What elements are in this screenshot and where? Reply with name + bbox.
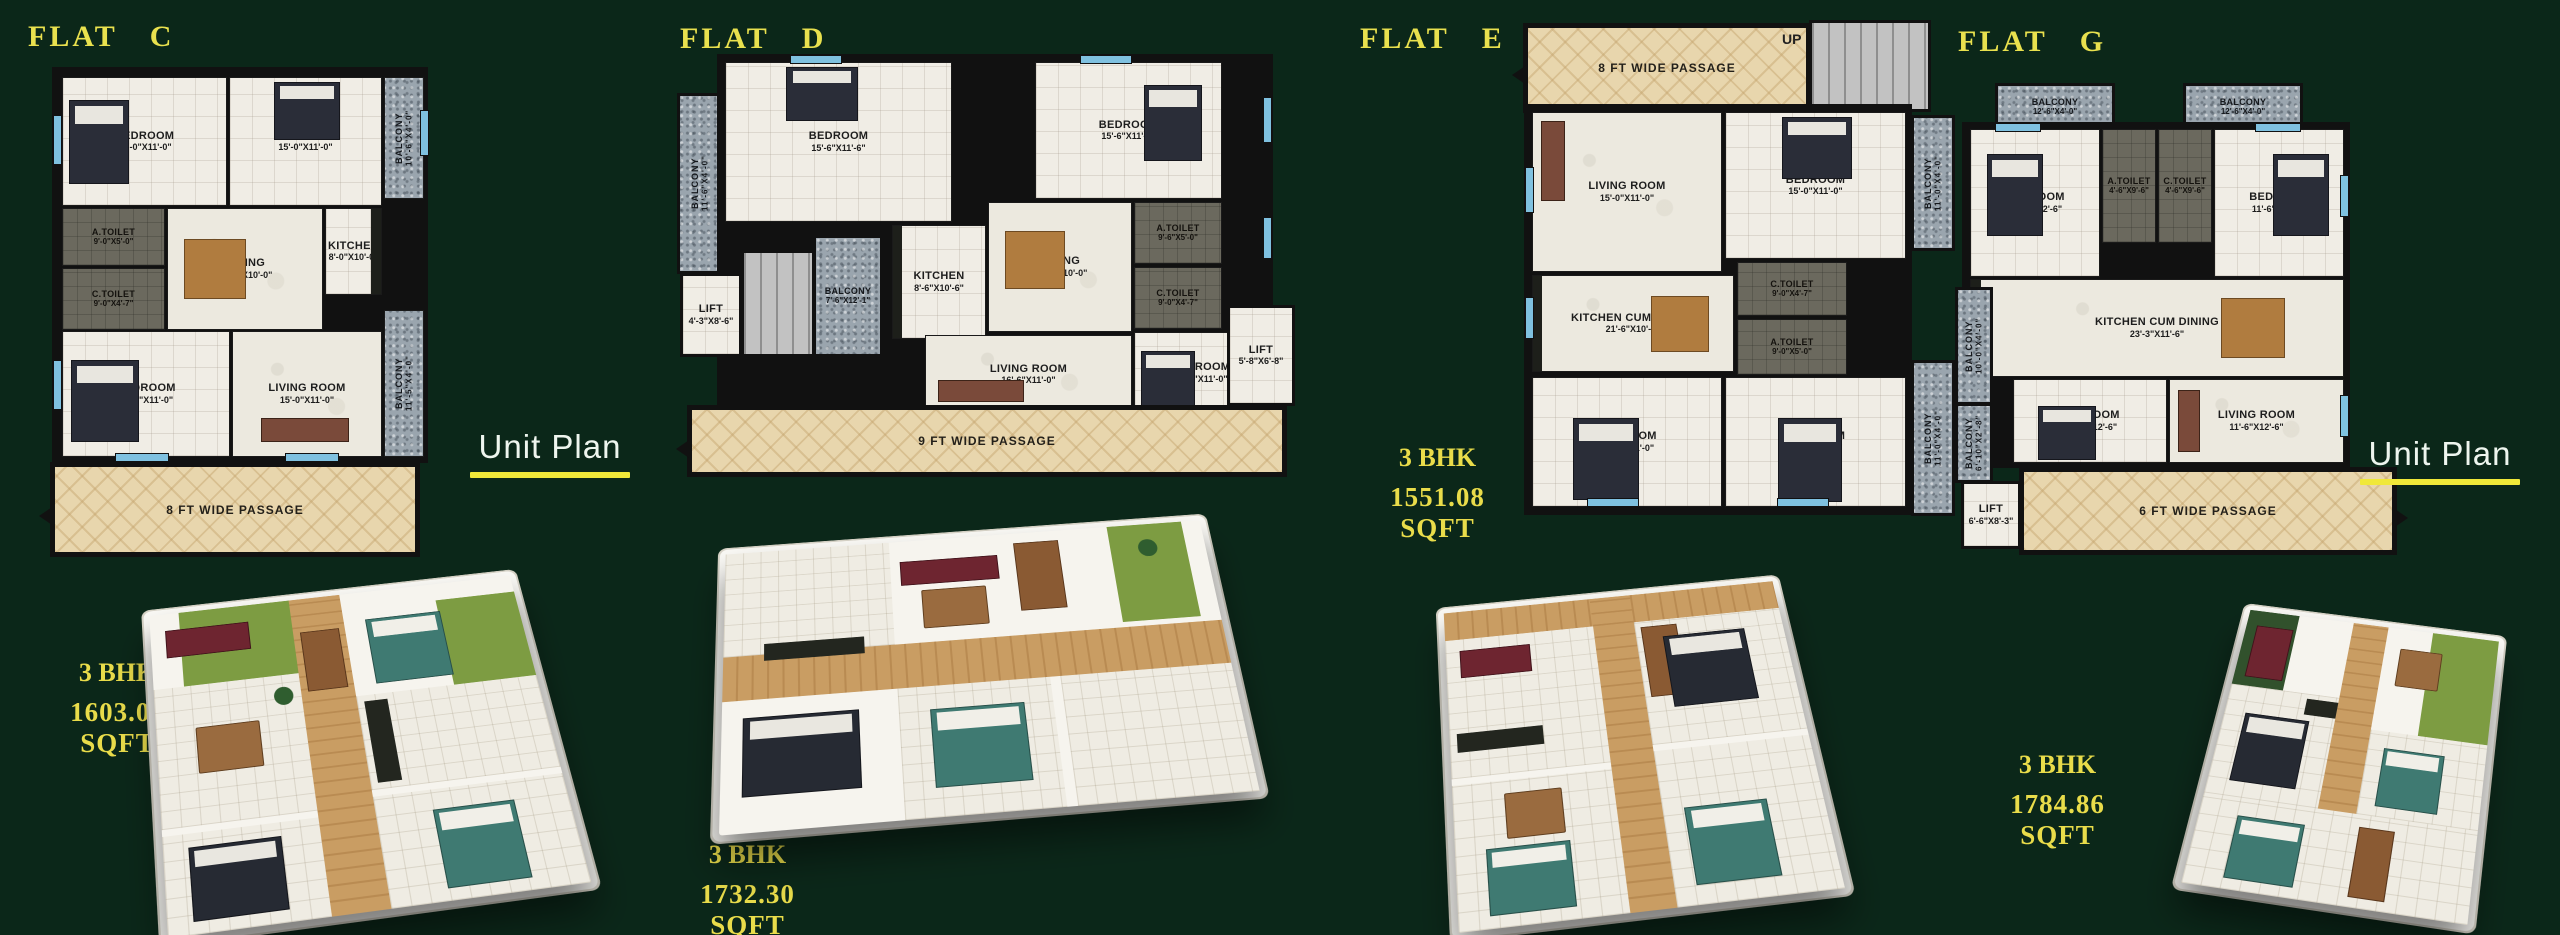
bed-furniture bbox=[1782, 117, 1852, 179]
room-dim: 11'-0"X4'-0" bbox=[1933, 155, 1943, 211]
sofa-furniture bbox=[261, 418, 349, 442]
area-label: 1732.30 SQFT bbox=[665, 879, 830, 935]
room-dim: 15'-0"X11'-0" bbox=[1788, 186, 1842, 197]
room-name: A.TOILET bbox=[2107, 176, 2150, 186]
dining-table-furniture bbox=[195, 720, 265, 774]
room-name: KITCHEN CUM DINING bbox=[2095, 316, 2219, 329]
bed-furniture bbox=[365, 611, 454, 683]
room-dim: 9'-6"X5'-0" bbox=[1158, 233, 1198, 243]
flat-g-bedroom-2: BEDROOM 11'-6"X12'-6" bbox=[2214, 129, 2344, 277]
flat-e-floorplan: 8 FT WIDE PASSAGE UP LIVING ROOM 15'-0"X… bbox=[1515, 15, 1955, 515]
unit-plan-label-left: Unit Plan bbox=[470, 428, 630, 478]
flat-d-a-toilet: A.TOILET 9'-6"X5'-0" bbox=[1134, 202, 1222, 264]
flat-d-stairs bbox=[741, 250, 815, 357]
room-name: BALCONY bbox=[1964, 320, 1974, 372]
sofa-furniture bbox=[938, 380, 1024, 402]
flat-d-plan-block: BEDROOM 15'-6"X11'-6" BEDROOM 15'-6"X11'… bbox=[720, 57, 1270, 417]
window-strip bbox=[1777, 498, 1829, 507]
bed-furniture bbox=[1573, 418, 1639, 500]
room-name: BALCONY bbox=[2220, 97, 2267, 107]
room-name: LIVING ROOM bbox=[1588, 180, 1665, 193]
flat-e-title: FLAT E bbox=[1360, 22, 1505, 56]
dining-table-furniture bbox=[184, 239, 246, 299]
room-dim: 9'-0"X4'-7" bbox=[1772, 289, 1812, 299]
bed-furniture bbox=[2374, 748, 2444, 815]
room-dim: 12'-6"X4'-0" bbox=[2033, 107, 2077, 117]
bed-furniture bbox=[1778, 418, 1842, 502]
render-slab bbox=[149, 576, 591, 935]
room-dim: 6'-6"X8'-3" bbox=[1969, 516, 2014, 527]
room-dim: 15'-0"X11'-0" bbox=[1600, 193, 1654, 204]
room-name: LIVING ROOM bbox=[2218, 409, 2295, 422]
bed-furniture bbox=[1486, 840, 1578, 916]
flat-e-stairs: UP bbox=[1809, 20, 1931, 112]
flat-c-balcony-bottom: BALCONY 11'-5"X4'-0" bbox=[384, 310, 424, 457]
iso-apartment bbox=[681, 508, 1299, 853]
flat-c-dining: DINING 16'-7"X10'-0" bbox=[167, 208, 323, 330]
bhk-label: 3 BHK bbox=[1355, 443, 1520, 473]
room-name: LIFT bbox=[1979, 503, 2003, 516]
window-strip bbox=[1525, 167, 1534, 213]
flat-d-3d-render bbox=[695, 500, 1260, 832]
window-strip bbox=[2340, 175, 2349, 217]
passage-arrow-icon bbox=[676, 438, 692, 460]
flat-g-living-room: LIVING ROOM 11'-6"X12'-6" bbox=[2169, 379, 2344, 463]
sofa-furniture bbox=[1541, 121, 1565, 201]
flat-c-passage: 8 FT WIDE PASSAGE bbox=[50, 462, 420, 557]
flat-d-c-toilet: C.TOILET 9'-0"X4'-7" bbox=[1134, 267, 1222, 329]
room-name: A.TOILET bbox=[1156, 223, 1199, 233]
room-name: BALCONY bbox=[825, 286, 872, 296]
flat-c-kitchen: KITCHEN 8'-0"X10'-0" bbox=[325, 208, 382, 295]
window-strip bbox=[1080, 55, 1132, 64]
bed-furniture bbox=[274, 82, 340, 140]
room-dim: 9'-0"X4'-7" bbox=[1158, 298, 1198, 308]
flat-e-bedroom-1: BEDROOM 15'-0"X11'-0" bbox=[1725, 112, 1906, 259]
sofa-furniture bbox=[899, 555, 1000, 586]
flat-g-kitchen-cum-dining: KITCHEN CUM DINING 23'-3"X11'-6" bbox=[1970, 279, 2344, 377]
room-dim: 12'-6"X4'-0" bbox=[2221, 107, 2265, 117]
bed-furniture bbox=[1144, 85, 1202, 161]
bhk-label: 3 BHK bbox=[1975, 750, 2140, 780]
room-name: KITCHEN bbox=[914, 270, 965, 283]
flat-g-title: FLAT G bbox=[1958, 25, 2106, 59]
room-dim: 5'-8"X6'-8" bbox=[1239, 356, 1284, 367]
sofa-furniture bbox=[2178, 390, 2200, 452]
room-name: LIFT bbox=[699, 303, 723, 316]
room-name: LIVING ROOM bbox=[268, 382, 345, 395]
room-dim: 4'-6"X9'-6" bbox=[2109, 186, 2149, 196]
window-strip bbox=[1525, 297, 1534, 339]
room-dim: 15'-0"X11'-0" bbox=[278, 142, 332, 153]
flat-d-bedroom-2: BEDROOM 15'-6"X11'-0" bbox=[1035, 62, 1222, 199]
unit-plan-text: Unit Plan bbox=[479, 428, 622, 465]
brochure-canvas: FLAT C BEDROOM 15'-0"X11'-0" BEDROOM 15'… bbox=[0, 0, 2560, 935]
room-dim: 11'-6"X12'-6" bbox=[2229, 422, 2283, 433]
render-slab bbox=[719, 520, 1260, 835]
flat-c-floorplan: BEDROOM 15'-0"X11'-0" BEDROOM 15'-0"X11'… bbox=[50, 70, 435, 552]
room-dim: 15'-6"X11'-6" bbox=[811, 143, 865, 154]
flat-c-bedroom-2: BEDROOM 15'-0"X11'-0" bbox=[229, 77, 382, 206]
passage-arrow-icon bbox=[39, 505, 55, 527]
flat-g-bedroom-1: BEDROOM 11'-6"X12'-6" bbox=[1970, 129, 2100, 277]
room-dim: 8'-6"X10'-6" bbox=[914, 283, 964, 294]
flat-e-bedroom-3: BEDROOM 15'-0"X11'-0" bbox=[1725, 377, 1906, 507]
flat-d-lift-left: LIFT 4'-3"X8'-6" bbox=[680, 273, 742, 357]
flat-g-c-toilet: C.TOILET 4'-6"X9'-6" bbox=[2158, 129, 2212, 243]
flat-e-spec: 3 BHK 1551.08 SQFT bbox=[1355, 443, 1520, 544]
flat-g-bedroom-3: BEDROOM 11'-6"X12'-6" bbox=[2013, 379, 2167, 463]
iso-apartment bbox=[2158, 597, 2517, 935]
flat-d-balcony-left: BALCONY 11'-6"X4'-0" bbox=[677, 93, 723, 274]
flat-e-c-toilet: C.TOILET 9'-0"X4'-7" bbox=[1737, 262, 1847, 316]
dining-table-furniture bbox=[921, 586, 990, 629]
flat-c-c-toilet: C.TOILET 9'-0"X4'-7" bbox=[62, 268, 165, 330]
room-dim: 10'-0"X4'-0" bbox=[1974, 318, 1984, 374]
flat-g-floorplan: BALCONY 12'-6"X4'-0" BALCONY 12'-6"X4'-0… bbox=[1955, 75, 2407, 555]
flat-c-plan-block: BEDROOM 15'-0"X11'-0" BEDROOM 15'-0"X11'… bbox=[55, 70, 425, 460]
kitchen-counter-furniture bbox=[893, 226, 902, 338]
bed-furniture bbox=[1684, 798, 1782, 885]
flat-g-plan-block: BEDROOM 11'-6"X12'-6" A.TOILET 4'-6"X9'-… bbox=[1965, 125, 2347, 465]
window-strip bbox=[790, 55, 842, 64]
room-dim: 7'-6"X12'-1" bbox=[826, 296, 870, 306]
bed-furniture bbox=[2273, 154, 2329, 236]
room-name: BALCONY bbox=[394, 358, 404, 410]
room-name: BALCONY bbox=[1964, 417, 1974, 469]
window-strip bbox=[1263, 217, 1272, 259]
flat-e-bedroom-2: BEDROOM 15'-0"X11'-0" bbox=[1532, 377, 1722, 507]
room-name: BALCONY bbox=[394, 112, 404, 164]
dining-table-furniture bbox=[1504, 787, 1566, 839]
window-strip bbox=[2340, 395, 2349, 437]
area-label: 1784.86 SQFT bbox=[1975, 789, 2140, 851]
room-dim: 10'-6"X4'-0" bbox=[404, 110, 414, 166]
room-name: A.TOILET bbox=[1770, 337, 1813, 347]
passage-label: 6 FT WIDE PASSAGE bbox=[2139, 504, 2276, 518]
bed-furniture bbox=[741, 709, 862, 798]
bed-furniture bbox=[1663, 628, 1760, 707]
room-name: A.TOILET bbox=[92, 227, 135, 237]
room-dim: 6'-10"X2'-8" bbox=[1974, 415, 1984, 471]
flat-g-balcony-left-mid: BALCONY 10'-0"X4'-0" bbox=[1955, 287, 1993, 405]
unit-plan-underline bbox=[470, 472, 630, 478]
room-dim: 23'-3"X11'-6" bbox=[2130, 329, 2184, 340]
bed-furniture bbox=[188, 836, 290, 922]
bed-furniture bbox=[2223, 815, 2305, 888]
room-dim: 11'-5"X4'-0" bbox=[404, 356, 414, 412]
window-strip bbox=[420, 110, 429, 156]
flat-d-passage: 9 FT WIDE PASSAGE bbox=[687, 405, 1287, 477]
flat-e-a-toilet: A.TOILET 9'-0"X5'-0" bbox=[1737, 319, 1847, 375]
room-name: BALCONY bbox=[1923, 412, 1933, 464]
flat-c-title: FLAT C bbox=[28, 20, 174, 54]
flat-g-spec: 3 BHK 1784.86 SQFT bbox=[1975, 750, 2140, 851]
flat-d-dining: DINING 16'-7"X10'-0" bbox=[988, 202, 1132, 332]
flat-g-a-toilet: A.TOILET 4'-6"X9'-6" bbox=[2102, 129, 2156, 243]
room-name: BALCONY bbox=[2032, 97, 2079, 107]
flat-e-kitchen-cum-dining: KITCHEN CUM DINING 21'-6"X10'-6" bbox=[1532, 275, 1734, 372]
flat-d-floorplan: BALCONY 11'-6"X4'-0" BEDROOM 15'-6"X11'-… bbox=[675, 55, 1295, 475]
unit-plan-label-right: Unit Plan bbox=[2360, 435, 2520, 485]
room-name: LIFT bbox=[1249, 344, 1273, 357]
window-strip bbox=[285, 453, 339, 462]
flat-c-bedroom-1: BEDROOM 15'-0"X11'-0" bbox=[62, 77, 227, 206]
render-slab bbox=[1444, 581, 1844, 933]
flat-g-lift: LIFT 6'-6"X8'-3" bbox=[1961, 481, 2021, 549]
room-dim: 4'-3"X8'-6" bbox=[689, 316, 734, 327]
render-slab bbox=[2181, 610, 2499, 926]
flat-e-3d-render bbox=[1435, 552, 1825, 930]
tile-room bbox=[1060, 663, 1259, 806]
room-dim: 9'-0"X4'-7" bbox=[94, 299, 134, 309]
room-dim: 11'-6"X4'-0" bbox=[700, 156, 710, 212]
window-strip bbox=[53, 360, 62, 410]
dining-table-furniture bbox=[1651, 296, 1709, 352]
unit-plan-underline bbox=[2360, 479, 2520, 485]
passage-label: 8 FT WIDE PASSAGE bbox=[1598, 61, 1735, 75]
flat-c-3d-render bbox=[140, 550, 570, 930]
room-name: C.TOILET bbox=[1156, 288, 1199, 298]
flat-d-title: FLAT D bbox=[680, 22, 826, 56]
window-strip bbox=[1263, 97, 1272, 143]
bed-furniture bbox=[1987, 154, 2043, 236]
room-name: BALCONY bbox=[1923, 157, 1933, 209]
bed-furniture bbox=[69, 100, 129, 184]
room-name: LIVING ROOM bbox=[990, 363, 1067, 376]
flat-c-bedroom-3: BEDROOM 15'-0"X11'-0" bbox=[62, 331, 230, 457]
passage-arrow-icon bbox=[2392, 507, 2408, 529]
room-dim: 15'-0"X11'-0" bbox=[280, 395, 334, 406]
flat-d-balcony-bottom: BALCONY 7'-6"X12'-1" bbox=[813, 235, 883, 357]
window-strip bbox=[53, 115, 62, 165]
flat-d-living-room: LIVING ROOM 16'-6"X11'-0" bbox=[925, 335, 1132, 414]
passage-label: 9 FT WIDE PASSAGE bbox=[918, 434, 1055, 448]
bed-furniture bbox=[1141, 351, 1195, 409]
dining-table-furniture bbox=[1005, 231, 1065, 289]
window-strip bbox=[1995, 123, 2041, 132]
passage-arrow-icon bbox=[1512, 64, 1528, 86]
flat-d-spec: 3 BHK 1732.30 SQFT bbox=[665, 840, 830, 935]
flat-e-living-room: LIVING ROOM 15'-0"X11'-0" bbox=[1532, 112, 1722, 272]
bed-furniture bbox=[930, 702, 1034, 788]
area-label: 1551.08 SQFT bbox=[1355, 482, 1520, 544]
flat-d-bedroom-1: BEDROOM 15'-6"X11'-6" bbox=[725, 62, 952, 222]
dining-table-furniture bbox=[2394, 649, 2442, 692]
wardrobe-furniture bbox=[1013, 540, 1067, 610]
flat-e-balcony-top: BALCONY 11'-0"X4'-0" bbox=[1911, 115, 1955, 251]
iso-apartment bbox=[123, 562, 624, 935]
flat-g-3d-render bbox=[2200, 582, 2500, 927]
stairs-up-label: UP bbox=[1782, 31, 1801, 47]
flat-d-kitchen: KITCHEN 8'-6"X10'-6" bbox=[892, 225, 986, 339]
flat-g-passage: 6 FT WIDE PASSAGE bbox=[2019, 467, 2397, 555]
flat-c-balcony-top: BALCONY 10'-6"X4'-0" bbox=[384, 77, 424, 199]
kitchen-counter-furniture bbox=[1533, 276, 1542, 371]
flat-g-balcony-left-low: BALCONY 6'-10"X2'-8" bbox=[1955, 403, 1993, 483]
window-strip bbox=[1587, 498, 1639, 507]
flat-d-lift-right: LIFT 5'-8"X6'-8" bbox=[1227, 305, 1295, 406]
window-strip bbox=[2255, 123, 2301, 132]
flat-e-passage: 8 FT WIDE PASSAGE bbox=[1523, 23, 1811, 113]
room-dim: 9'-0"X5'-0" bbox=[1772, 347, 1812, 357]
room-dim: 9'-0"X5'-0" bbox=[94, 237, 134, 247]
iso-apartment bbox=[1421, 568, 1874, 935]
room-dim: 4'-6"X9'-6" bbox=[2165, 186, 2205, 196]
room-name: C.TOILET bbox=[2163, 176, 2206, 186]
kitchen-counter-furniture bbox=[371, 209, 381, 294]
unit-plan-text: Unit Plan bbox=[2369, 435, 2512, 472]
flat-c-living-room: LIVING ROOM 15'-0"X11'-0" bbox=[232, 331, 382, 457]
room-name: BEDROOM bbox=[809, 130, 869, 143]
window-strip bbox=[115, 453, 169, 462]
dining-table-furniture bbox=[2221, 298, 2285, 358]
flat-c-a-toilet: A.TOILET 9'-0"X5'-0" bbox=[62, 208, 165, 266]
room-dim: 11'-0"X4'-0" bbox=[1933, 410, 1943, 466]
passage-label: 8 FT WIDE PASSAGE bbox=[166, 503, 303, 517]
room-name: BALCONY bbox=[690, 158, 700, 210]
flat-e-balcony-bottom: BALCONY 11'-0"X4'-0" bbox=[1911, 360, 1955, 516]
room-name: C.TOILET bbox=[92, 289, 135, 299]
bed-furniture bbox=[786, 67, 858, 121]
room-name: C.TOILET bbox=[1770, 279, 1813, 289]
accent-wall bbox=[1106, 522, 1201, 623]
bed-furniture bbox=[71, 360, 139, 442]
flat-e-plan-block: LIVING ROOM 15'-0"X11'-0" BEDROOM 15'-0"… bbox=[1527, 107, 1909, 512]
bed-furniture bbox=[2038, 406, 2096, 460]
